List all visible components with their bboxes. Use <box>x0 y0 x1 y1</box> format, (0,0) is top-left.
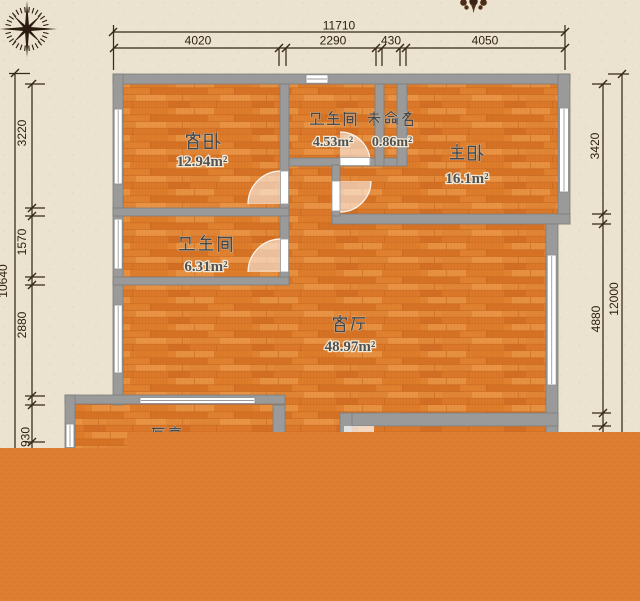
svg-text:12.94m²: 12.94m² <box>177 154 228 170</box>
svg-text:3220: 3220 <box>15 119 29 146</box>
svg-text:4.53m²: 4.53m² <box>313 135 353 150</box>
svg-text:10640: 10640 <box>0 264 10 298</box>
svg-text:4020: 4020 <box>185 34 212 48</box>
svg-text:11710: 11710 <box>323 19 356 33</box>
svg-text:430: 430 <box>381 34 401 48</box>
svg-text:2880: 2880 <box>15 311 29 338</box>
svg-text:6.31m²: 6.31m² <box>184 259 228 275</box>
svg-text:930: 930 <box>19 427 33 447</box>
svg-text:12000: 12000 <box>607 282 621 316</box>
svg-text:0.86m²: 0.86m² <box>372 135 412 150</box>
svg-text:2290: 2290 <box>320 34 347 48</box>
svg-text:4880: 4880 <box>589 305 603 332</box>
svg-text:3420: 3420 <box>588 132 602 159</box>
svg-text:4050: 4050 <box>472 34 499 48</box>
svg-text:16.1m²: 16.1m² <box>445 171 489 187</box>
svg-text:1570: 1570 <box>15 228 29 255</box>
svg-text:48.97m²: 48.97m² <box>325 339 376 355</box>
